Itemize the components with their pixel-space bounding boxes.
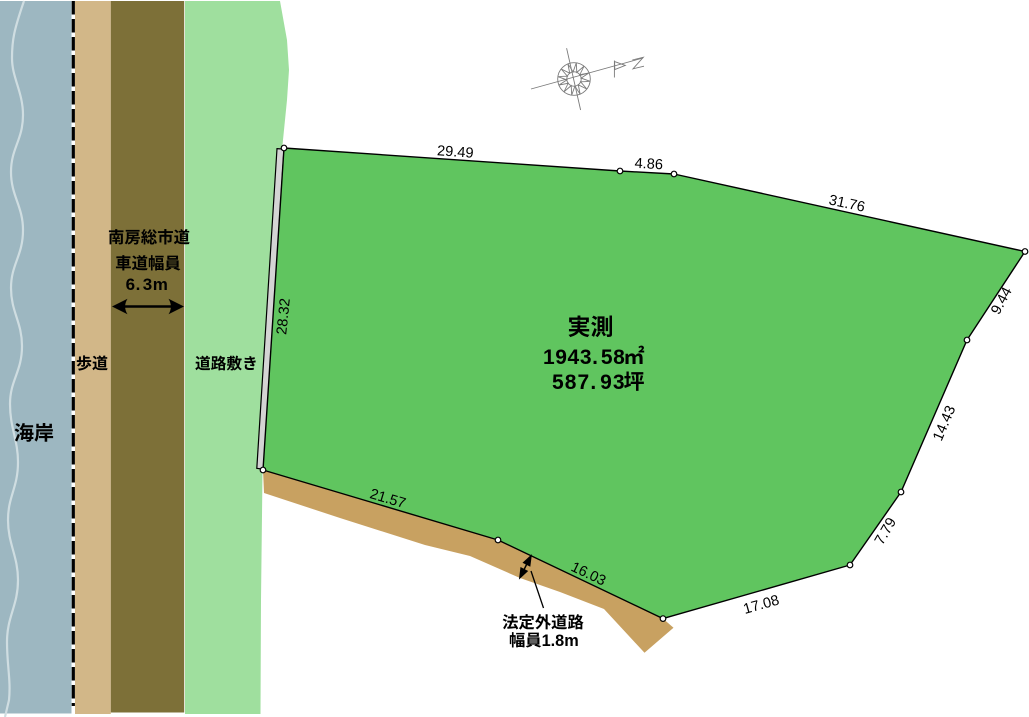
svg-text:1943. 58: 1943. 58	[543, 346, 625, 369]
svg-text:4.86: 4.86	[634, 156, 663, 174]
svg-text:29.49: 29.49	[437, 143, 475, 161]
svg-text:6. 3m: 6. 3m	[126, 275, 169, 294]
svg-text:1.8m: 1.8m	[542, 632, 579, 650]
svg-text:587. 93: 587. 93	[552, 371, 626, 394]
